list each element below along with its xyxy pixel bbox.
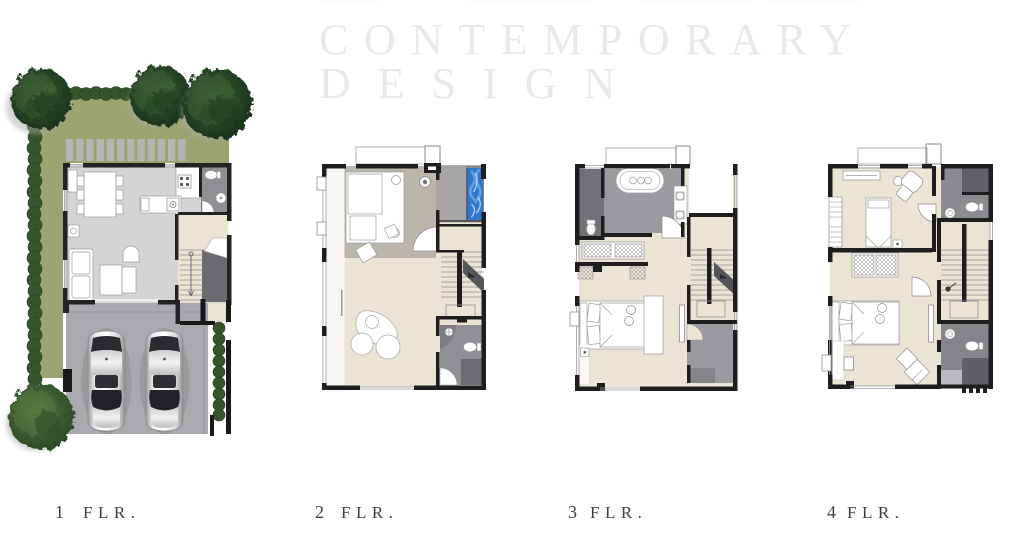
svg-text:CONTEMPORARY: CONTEMPORARY <box>319 15 867 64</box>
svg-text:FLR.: FLR. <box>847 503 904 522</box>
svg-text:2: 2 <box>315 502 324 522</box>
svg-text:FLR.: FLR. <box>341 503 398 522</box>
svg-text:4: 4 <box>827 502 836 522</box>
svg-text:1: 1 <box>55 502 64 522</box>
svg-text:FLR.: FLR. <box>83 503 140 522</box>
svg-text:FLR.: FLR. <box>590 503 647 522</box>
svg-text:3: 3 <box>568 502 577 522</box>
svg-text:DESIGN: DESIGN <box>319 59 642 108</box>
